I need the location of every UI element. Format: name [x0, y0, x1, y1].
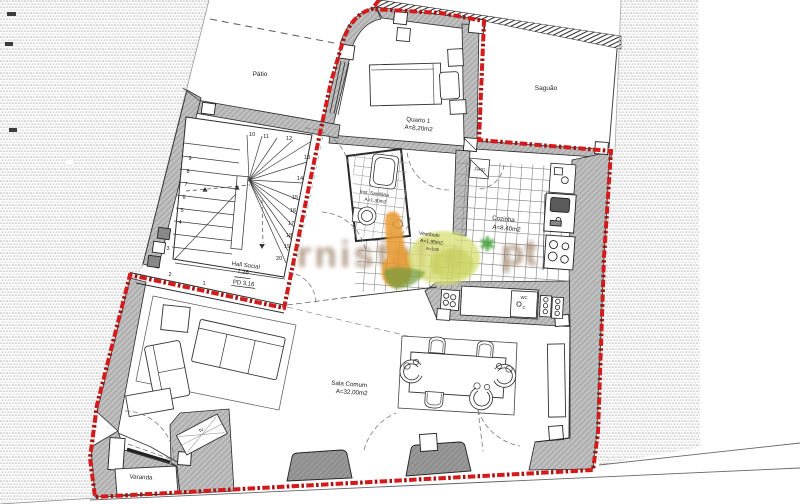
svg-text:14: 14 [297, 176, 303, 182]
svg-text:8: 8 [186, 169, 189, 175]
svg-text:19: 19 [284, 244, 290, 250]
svg-text:10: 10 [249, 132, 255, 138]
svg-text:7: 7 [184, 182, 187, 188]
svg-text:3: 3 [166, 246, 169, 252]
svg-text:9: 9 [188, 156, 191, 162]
svg-text:Varanda: Varanda [129, 473, 153, 481]
svg-text:18: 18 [286, 233, 292, 239]
svg-text:5: 5 [180, 208, 183, 214]
svg-text:20: 20 [276, 256, 282, 262]
svg-text:13: 13 [304, 155, 310, 161]
svg-text:pt: pt [501, 232, 538, 273]
svg-text:12: 12 [286, 136, 292, 142]
svg-text:✱: ✱ [479, 234, 496, 256]
svg-text:16: 16 [290, 208, 296, 214]
svg-text:4: 4 [178, 220, 181, 226]
svg-text:Saguão: Saguão [535, 85, 558, 92]
svg-text:WC: WC [521, 295, 528, 300]
svg-text:6: 6 [182, 195, 185, 201]
svg-text:2: 2 [168, 272, 171, 278]
svg-text:FRIG: FRIG [474, 167, 486, 173]
svg-text:1: 1 [202, 281, 205, 287]
svg-text:15: 15 [292, 195, 298, 201]
svg-text:17: 17 [288, 221, 294, 227]
svg-text:C: C [522, 305, 525, 310]
svg-text:Pátio: Pátio [253, 71, 268, 78]
svg-text:11: 11 [263, 134, 269, 140]
